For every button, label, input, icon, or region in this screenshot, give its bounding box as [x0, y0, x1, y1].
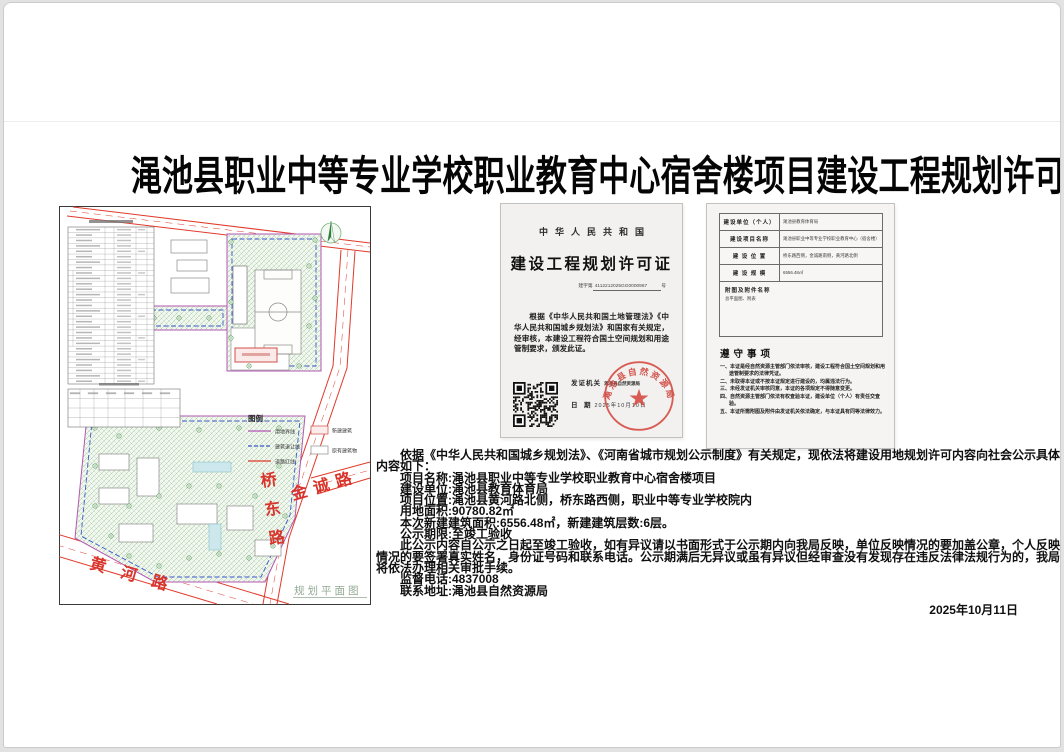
site-plan: 图例 用地界线 建筑退让线 道路红线 新建建筑 原有建筑物 桥东路 金诚路 黄河…: [59, 206, 371, 605]
table-row-label: 建 设 规 模: [720, 265, 780, 281]
permit-title: 建设工程规划许可证: [501, 252, 682, 274]
page-title: 渑池县职业中等专业学校职业教育中心宿舍楼项目建设工程规划许可批后公示: [131, 142, 934, 202]
top-divider: [4, 121, 1060, 122]
legend-boundary-label: 用地界线: [275, 429, 295, 436]
legend-existing-label: 原有建筑物: [332, 448, 357, 455]
planning-permit-certificate: 中华人民共和国 建设工程规划许可证 建字第4112212025GG0000967…: [500, 203, 683, 438]
plan-caption: 规划平面图: [293, 584, 367, 598]
notice-paragraph: 联系地址:渑池县自然资源局: [376, 586, 1061, 597]
table-row-label: 建设单位（个人）: [720, 214, 780, 230]
notice-date: 2025年10月11日: [376, 605, 1061, 616]
legend-existing-icon: [311, 446, 328, 454]
rule-item: 二、未取得本证或不按本证规定进行建设的，均属违法行为。: [720, 379, 887, 386]
legend-roadline-label: 道路红线: [275, 459, 295, 466]
table-row: 建设项目名称 渑池县职业中等专业学校职业教育中心（宿舍楼）: [720, 231, 882, 248]
table-row: 建设单位（个人） 渑池县教育体育局: [720, 214, 882, 231]
svg-text:规划平面图: 规划平面图: [294, 584, 362, 597]
table-row-value: 渑池县教育体育局: [780, 214, 882, 230]
attachment-section: 附图及附件名称 总平面图、附表: [720, 282, 882, 306]
table-row: 建 设 规 模 6556.48㎡: [720, 265, 882, 282]
legend-setback-label: 建筑退让线: [275, 444, 300, 451]
legend-title: 图例: [248, 413, 263, 423]
table-row-value: 桥东路西侧，金诚路南侧，黄河路北侧: [780, 248, 882, 264]
notice-page: 渑池县职业中等专业学校职业教育中心宿舍楼项目建设工程规划许可批后公示: [3, 2, 1061, 748]
new-building: [235, 348, 277, 362]
summary-table: [68, 383, 180, 427]
permit-info-table: 建设单位（个人） 渑池县教育体育局 建设项目名称 渑池县职业中等专业学校职业教育…: [719, 213, 883, 337]
planning-permit-back-page: 建设单位（个人） 渑池县教育体育局 建设项目名称 渑池县职业中等专业学校职业教育…: [706, 203, 895, 449]
permit-number: 建字第4112212025GG0000967号: [501, 282, 682, 289]
notice-text-block: 依据《中华人民共和国城乡规划法》、《河南省城市规划公示制度》有关规定，现依法将建…: [376, 450, 1061, 616]
qr-code: [513, 382, 558, 427]
legend-newbuilding-icon: [311, 426, 328, 434]
seal-star-icon: ★: [628, 385, 650, 412]
permit-country: 中华人民共和国: [501, 225, 682, 238]
indicator-table: [68, 220, 154, 384]
rules-title: 遵守事项: [720, 346, 774, 360]
notice-paragraph: 此公示内容自公示之日起至竣工验收，如有异议请以书面形式于公示期内向我局反映，单位…: [376, 540, 1061, 574]
rule-item: 三、未经发证机关审核同意，本证的各项规定不得随意变更。: [720, 386, 887, 393]
table-row-value: 6556.48㎡: [780, 265, 882, 281]
notice-paragraph: 依据《中华人民共和国城乡规划法》、《河南省城市规划公示制度》有关规定，现依法将建…: [376, 450, 1061, 473]
rule-item: 五、本证所需附图及附件由发证机关依法确定，与本证具有同等法律效力。: [720, 409, 887, 416]
attachment-label: 附图及附件名称: [725, 286, 877, 294]
notice-paragraphs: 依据《中华人民共和国城乡规划法》、《河南省城市规划公示制度》有关规定，现依法将建…: [376, 450, 1061, 597]
official-seal: ★ 渑池县自然资源局: [598, 355, 680, 437]
table-row: 建 设 位 置 桥东路西侧，金诚路南侧，黄河路北侧: [720, 248, 882, 265]
rules-list: 一、本证是经自然资源主管部门依法审核，建设工程符合国土空间规划和用途管制要求的法…: [720, 364, 887, 417]
rule-item: 一、本证是经自然资源主管部门依法审核，建设工程符合国土空间规划和用途管制要求的法…: [720, 364, 887, 378]
legend-newbuilding-label: 新建建筑: [332, 428, 352, 435]
permit-body: 根据《中华人民共和国土地管理法》《中华人民共和国城乡规划法》和国家有关规定，经审…: [514, 312, 669, 355]
rule-item: 四、自然资源主管部门依法有权查验本证，建设单位（个人）有责任交查验。: [720, 394, 887, 408]
long-building: [233, 266, 247, 324]
table-row-value: 渑池县职业中等专业学校职业教育中心（宿舍楼）: [780, 231, 882, 247]
table-row-label: 建设项目名称: [720, 231, 780, 247]
permit-table-rows: 建设单位（个人） 渑池县教育体育局 建设项目名称 渑池县职业中等专业学校职业教育…: [720, 214, 882, 282]
sports-field: [255, 270, 301, 354]
permit-footer: 发证机关渑池县自然资源局 日 期2025年10月10日 ★ 渑池县自然资源局: [513, 367, 676, 429]
attachment-value: 总平面图、附表: [725, 296, 877, 302]
table-row-label: 建 设 位 置: [720, 248, 780, 264]
